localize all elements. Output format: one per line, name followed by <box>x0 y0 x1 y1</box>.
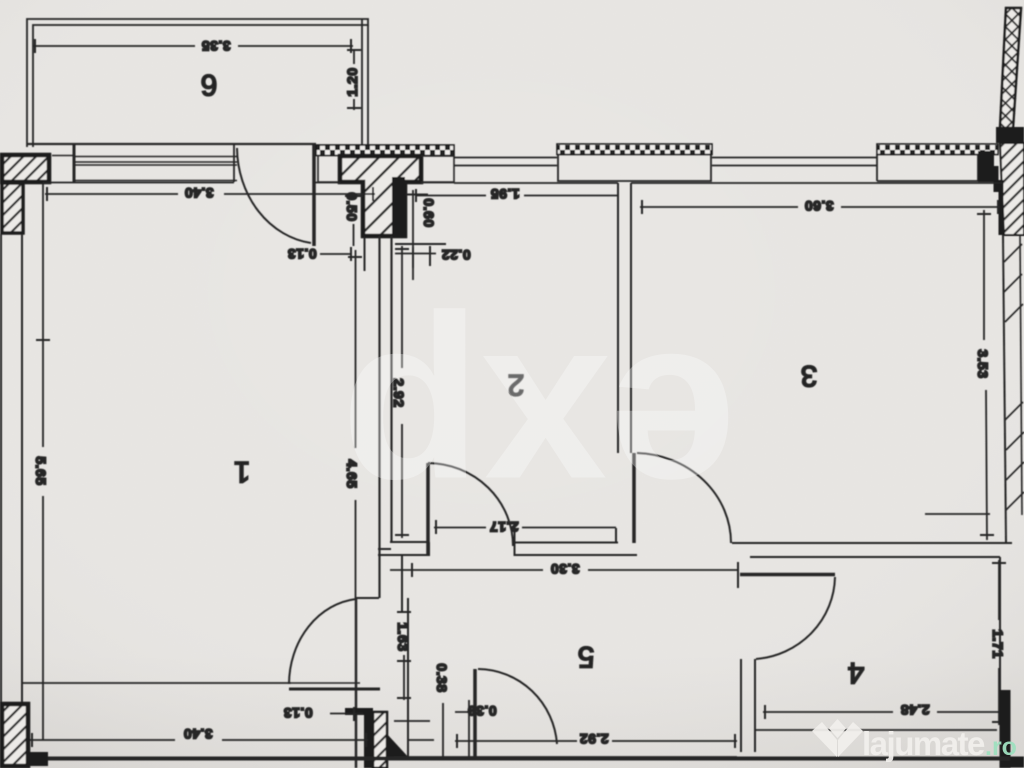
svg-text:0.50: 0.50 <box>344 192 360 221</box>
svg-text:1.95: 1.95 <box>490 186 519 202</box>
svg-text:.ro: .ro <box>985 733 1017 761</box>
svg-text:0.38: 0.38 <box>434 663 450 692</box>
svg-text:1: 1 <box>234 455 251 488</box>
svg-text:3.40: 3.40 <box>183 726 212 742</box>
svg-text:5.65: 5.65 <box>33 456 49 485</box>
svg-text:0.13: 0.13 <box>283 705 312 721</box>
svg-text:3.35: 3.35 <box>201 38 230 54</box>
svg-text:0.13: 0.13 <box>287 246 316 262</box>
svg-text:3.53: 3.53 <box>975 349 991 378</box>
svg-text:0.60: 0.60 <box>421 198 437 227</box>
svg-text:6: 6 <box>201 68 218 101</box>
svg-text:3.40: 3.40 <box>184 185 213 201</box>
svg-text:1.71: 1.71 <box>990 629 1006 658</box>
svg-text:0.22: 0.22 <box>441 247 470 263</box>
svg-text:2.48: 2.48 <box>900 702 929 718</box>
svg-text:3.60: 3.60 <box>804 198 833 214</box>
svg-text:0.39: 0.39 <box>467 703 496 719</box>
svg-text:5: 5 <box>578 640 595 673</box>
svg-text:4: 4 <box>848 656 865 689</box>
svg-text:lajumate: lajumate <box>862 725 985 762</box>
svg-text:1.20: 1.20 <box>344 67 360 96</box>
svg-text:3: 3 <box>801 359 818 392</box>
svg-text:exp: exp <box>341 307 737 564</box>
svg-text:2.92: 2.92 <box>579 731 608 747</box>
